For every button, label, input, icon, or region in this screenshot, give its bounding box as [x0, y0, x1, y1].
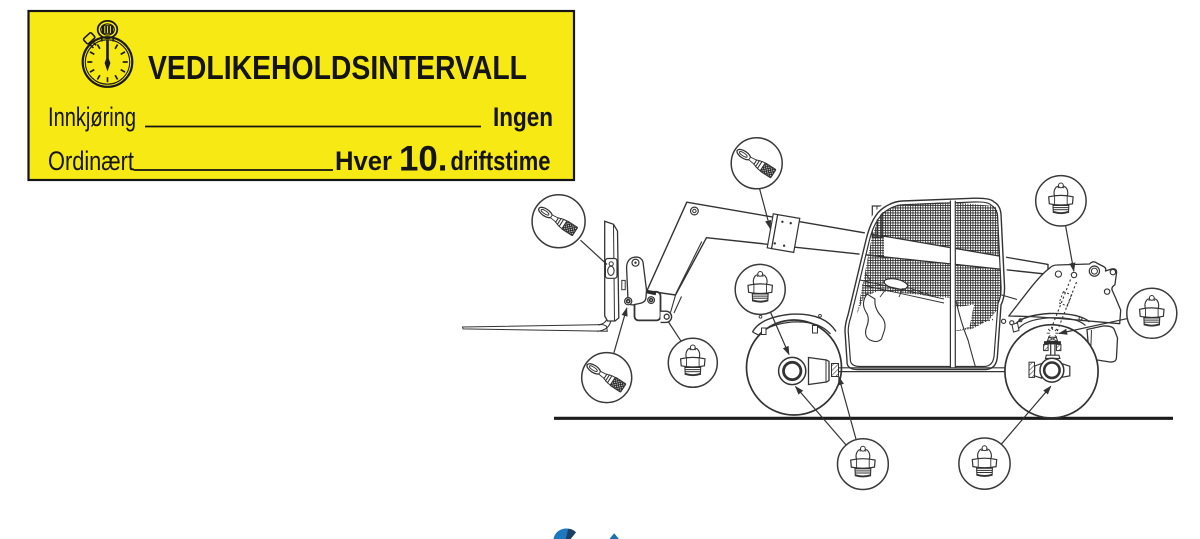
svg-text:Hver: Hver	[335, 146, 392, 176]
svg-text:VEDLIKEHOLDSINTERVALL: VEDLIKEHOLDSINTERVALL	[148, 49, 527, 86]
svg-text:Ingen: Ingen	[493, 102, 553, 132]
svg-text:driftstime: driftstime	[451, 146, 551, 176]
svg-text:Ordinært: Ordinært	[48, 146, 135, 176]
svg-text:Innkjøring: Innkjøring	[48, 102, 136, 132]
svg-text:10.: 10.	[399, 140, 448, 179]
